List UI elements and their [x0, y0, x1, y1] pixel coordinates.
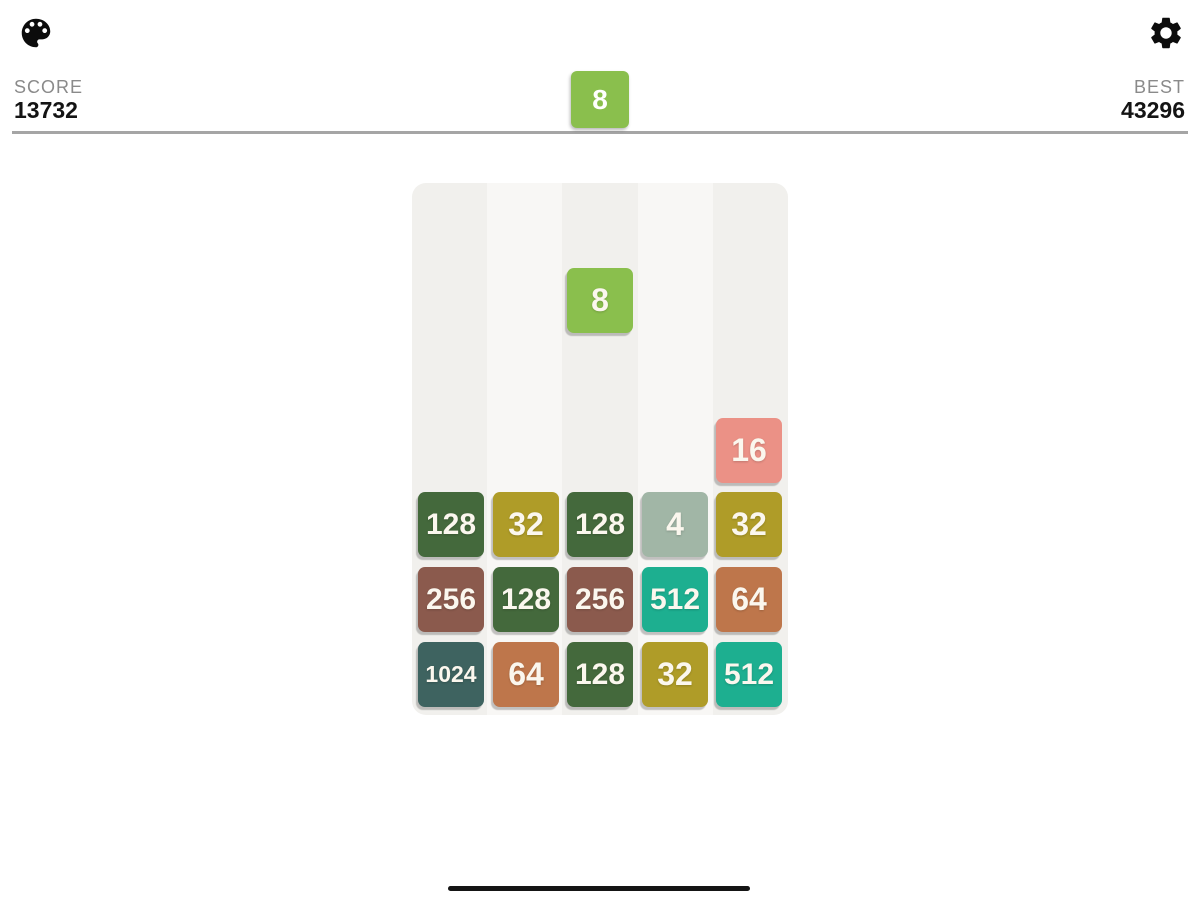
palette-button[interactable]	[14, 12, 58, 56]
tile: 1024	[418, 642, 484, 707]
tile: 128	[567, 492, 633, 557]
tile-value: 32	[508, 506, 544, 543]
tile-value: 1024	[425, 661, 476, 688]
tile: 32	[716, 492, 782, 557]
tile-value: 256	[426, 583, 476, 617]
board-column-4[interactable]	[638, 183, 713, 715]
next-tile-preview: 8	[571, 71, 629, 128]
best-label: BEST	[1121, 77, 1185, 98]
tile-value: 128	[575, 658, 625, 692]
score-panel: SCORE 13732	[14, 77, 83, 123]
tile-value: 4	[666, 506, 684, 543]
board-column-1[interactable]	[412, 183, 487, 715]
home-gesture-bar[interactable]	[448, 886, 750, 891]
falling-tile: 8	[567, 268, 633, 333]
tile: 256	[567, 567, 633, 632]
tile: 128	[567, 642, 633, 707]
tile-value: 128	[501, 583, 551, 617]
tile: 128	[418, 492, 484, 557]
next-tile-value: 8	[592, 84, 608, 116]
tile: 256	[418, 567, 484, 632]
palette-icon	[17, 14, 55, 55]
best-panel: BEST 43296	[1121, 77, 1185, 123]
tile: 128	[493, 567, 559, 632]
tile-value: 8	[591, 282, 609, 319]
settings-button[interactable]	[1144, 12, 1188, 56]
tile: 512	[716, 642, 782, 707]
tile-value: 64	[731, 581, 767, 618]
game-board: 8161283212843225612825651264102464128325…	[412, 183, 788, 715]
tile: 512	[642, 567, 708, 632]
tile-value: 512	[724, 658, 774, 692]
best-value: 43296	[1121, 98, 1185, 123]
score-label: SCORE	[14, 77, 83, 98]
tile-value: 32	[657, 656, 693, 693]
tile-value: 512	[650, 583, 700, 617]
tile-value: 64	[508, 656, 544, 693]
board-column-3[interactable]	[562, 183, 637, 715]
score-value: 13732	[14, 98, 83, 123]
tile: 32	[642, 642, 708, 707]
tile-value: 16	[731, 432, 767, 469]
header-divider	[12, 131, 1188, 134]
tile: 4	[642, 492, 708, 557]
tile-value: 128	[426, 508, 476, 542]
gear-icon	[1147, 14, 1185, 55]
tile-value: 256	[575, 583, 625, 617]
tile: 16	[716, 418, 782, 483]
tile: 32	[493, 492, 559, 557]
tile: 64	[493, 642, 559, 707]
tile-value: 32	[731, 506, 767, 543]
board-column-2[interactable]	[487, 183, 562, 715]
tile-value: 128	[575, 508, 625, 542]
tile: 64	[716, 567, 782, 632]
